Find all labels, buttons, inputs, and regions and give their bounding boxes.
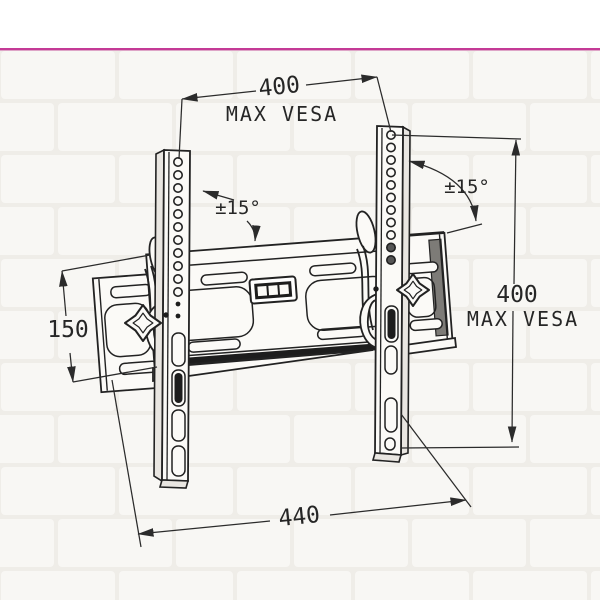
left-dim-value: 150 — [47, 317, 89, 343]
right-tilt-screw — [388, 309, 396, 339]
tilt-right-label: ±15° — [444, 176, 490, 198]
right-pivot-bolt — [373, 286, 378, 291]
top-dim-value: 400 — [257, 72, 301, 102]
left-arm-holes — [174, 158, 182, 296]
left-pivot-bolt — [163, 312, 168, 317]
right-arm-holes — [387, 131, 395, 264]
right-dim-value: 400 — [496, 282, 538, 308]
bottom-dim-value: 440 — [277, 502, 321, 532]
top-accent-line — [0, 48, 600, 50]
bubble-level — [249, 276, 297, 303]
left-vesa-arm — [154, 150, 190, 488]
top-white-strip — [0, 0, 600, 48]
wall-mount-diagram: 400 MAX VESA ±15° ±15° 150 400 MAX V — [0, 0, 600, 600]
screenshot-root: 400 MAX VESA ±15° ±15° 150 400 MAX V — [0, 0, 600, 600]
tilt-left-label: ±15° — [215, 197, 261, 219]
right-dim-label: MAX VESA — [467, 307, 579, 331]
top-dim-label: MAX VESA — [226, 102, 338, 126]
left-tilt-screw — [175, 373, 183, 403]
